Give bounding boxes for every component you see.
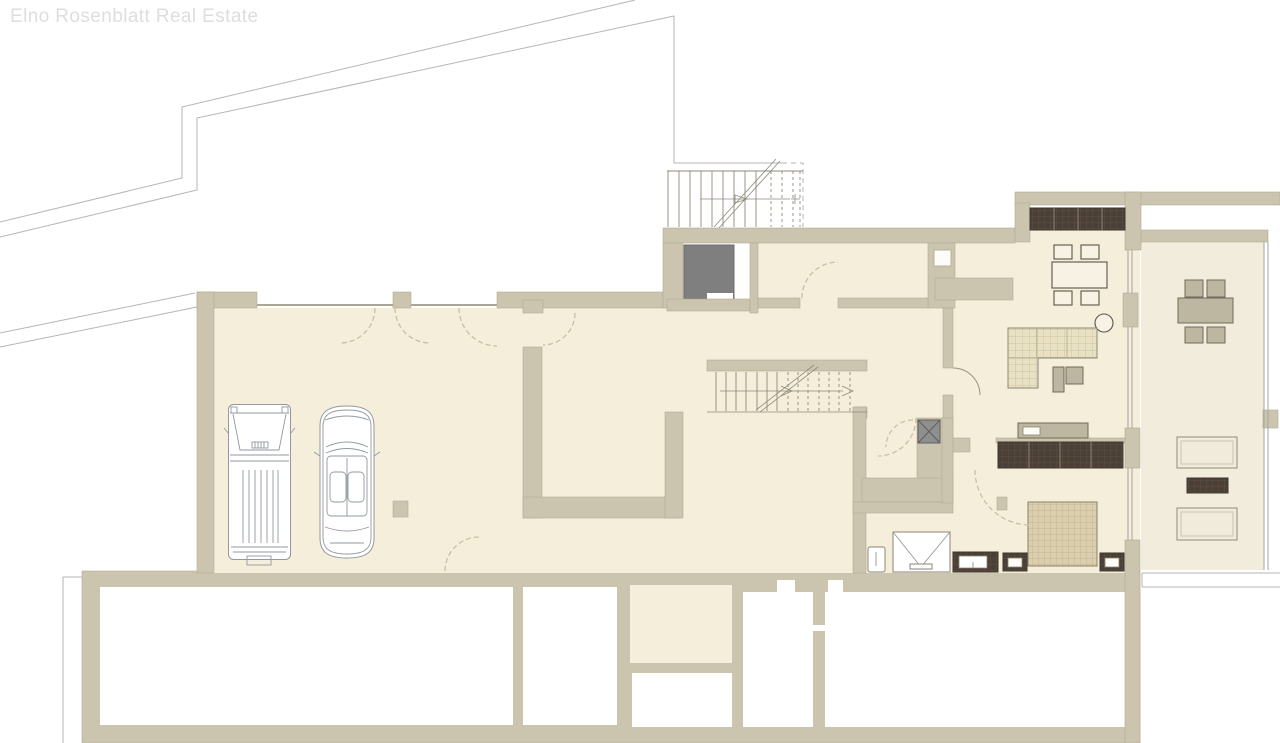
wardrobe-icon (998, 442, 1123, 468)
cellar-room-4 (825, 592, 1125, 727)
elevator-shaft-icon (918, 420, 940, 443)
shower-icon (893, 532, 950, 572)
wall-duct (934, 250, 951, 266)
window-gap (828, 580, 843, 592)
door-gap (813, 625, 825, 631)
storage-niche (676, 243, 750, 303)
floor-plan-canvas (0, 0, 1280, 743)
rug-icon (1187, 478, 1228, 493)
exterior-staircase (667, 159, 803, 229)
window-gap (777, 580, 795, 592)
nightstand-icon (1003, 553, 1027, 571)
kitchen-counter-icon (1030, 208, 1125, 230)
pool-room (100, 587, 513, 725)
cellar-room-1 (523, 587, 617, 725)
sideboard-icon (1018, 423, 1088, 438)
round-side-table-icon (1095, 314, 1113, 332)
floor-plan-page: Elno Rosenblatt Real Estate (0, 0, 1280, 743)
east-pillar (1263, 410, 1278, 428)
convertible-car-icon (314, 406, 380, 558)
hall-extension-floor (630, 585, 732, 663)
van-icon (224, 405, 295, 566)
nightstand-icon (1100, 553, 1124, 571)
basement-south-wing (82, 571, 1140, 743)
cellar-room-2 (632, 673, 732, 727)
garage-column (393, 501, 408, 517)
vanity-basin-icon (953, 552, 998, 572)
toilet-icon (868, 547, 885, 572)
storage-box-icon (684, 245, 734, 299)
cellar-room-3 (743, 592, 813, 727)
double-bed-icon (1028, 502, 1097, 566)
